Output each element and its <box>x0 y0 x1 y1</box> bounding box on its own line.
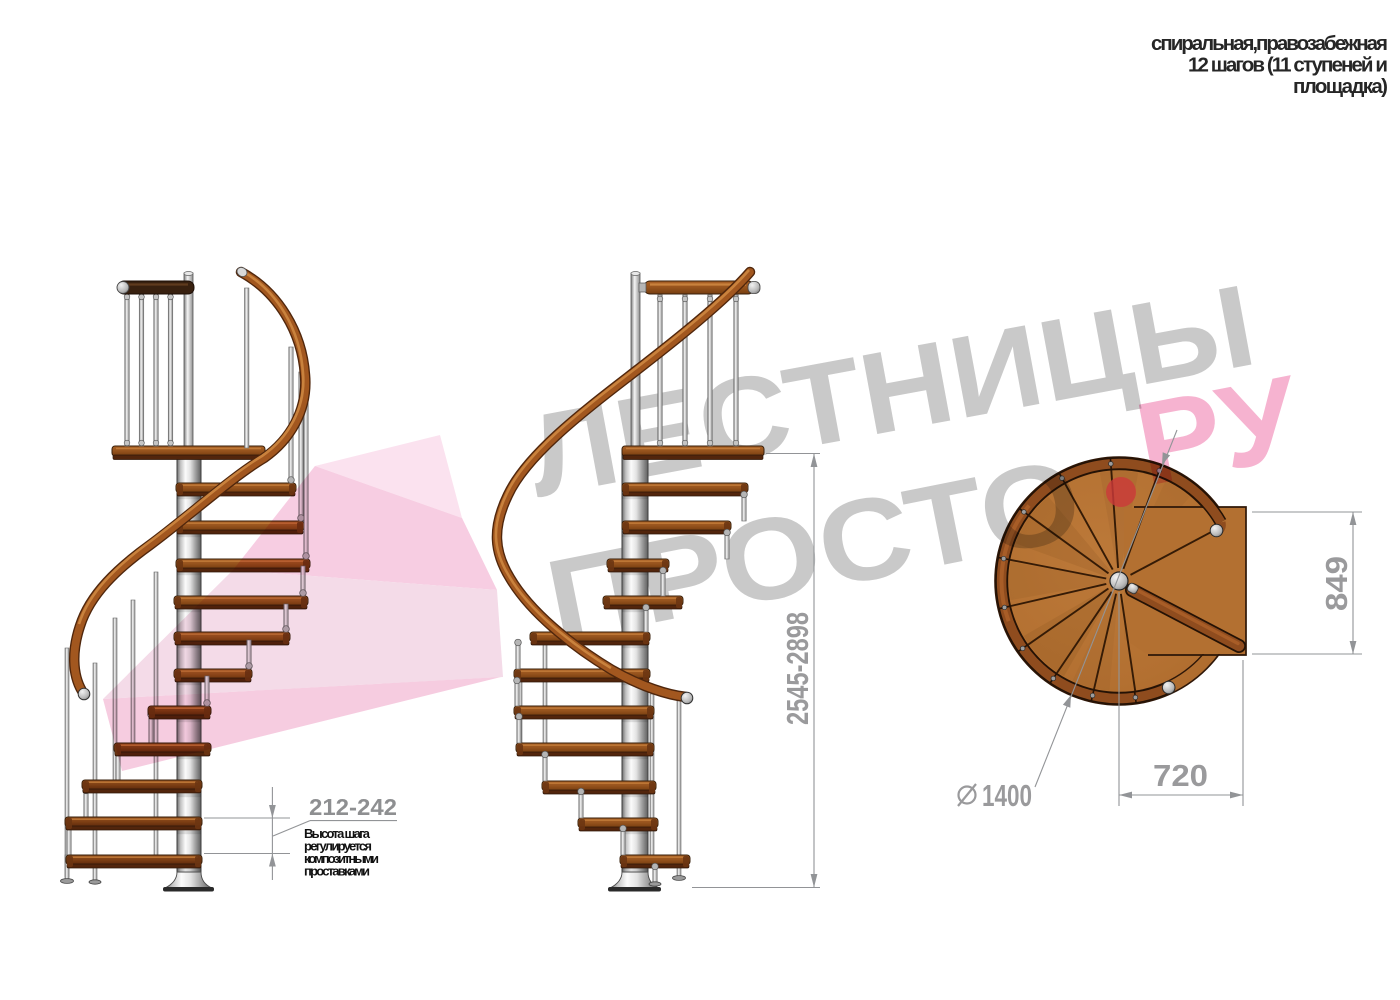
svg-text:1400: 1400 <box>982 778 1032 813</box>
svg-text:212-242: 212-242 <box>309 794 397 820</box>
svg-text:849: 849 <box>1319 556 1354 611</box>
svg-text:проставками: проставками <box>304 864 370 879</box>
svg-text:12 шагов (11 ступеней и: 12 шагов (11 ступеней и <box>1188 54 1388 77</box>
svg-text:спиральная,правозабежная: спиральная,правозабежная <box>1151 32 1388 55</box>
svg-text:2545-2898: 2545-2898 <box>780 612 815 725</box>
svg-text:площадка): площадка) <box>1293 75 1388 98</box>
svg-text:720: 720 <box>1153 758 1208 793</box>
